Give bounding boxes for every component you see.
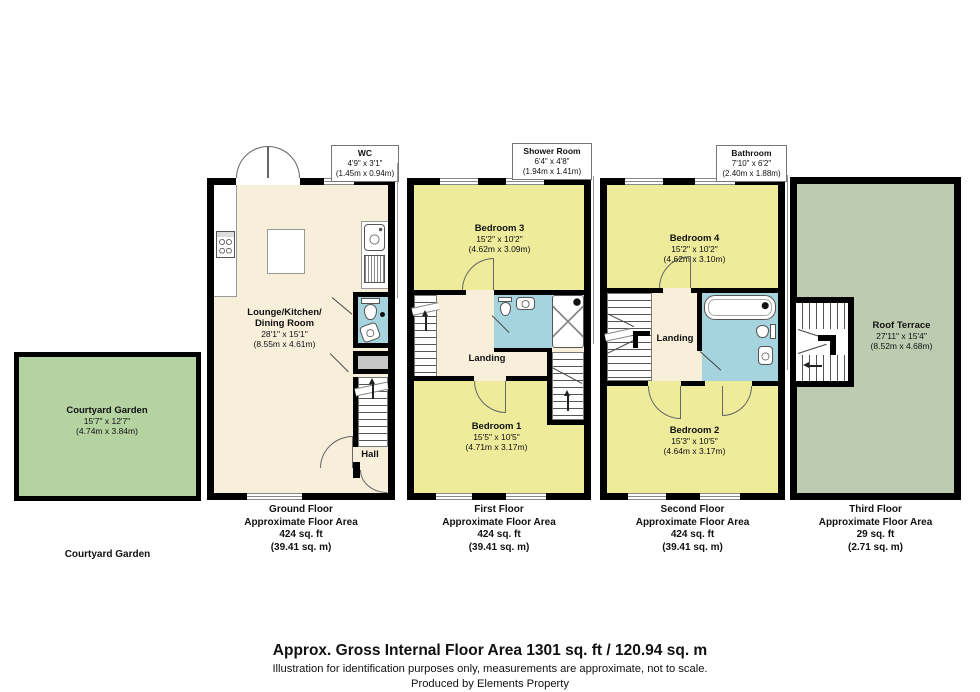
- cupboard: [353, 351, 388, 374]
- wc-dot: [380, 312, 385, 317]
- room-name: Bedroom 3: [437, 223, 562, 234]
- french-door-right-icon: [268, 146, 300, 178]
- window-bottom-2: [506, 493, 546, 500]
- bedroom2-door-arc-right: [722, 386, 752, 416]
- room-name: Lounge/Kitchen/ Dining Room: [222, 307, 347, 329]
- roof-stair-enclosure: [790, 297, 854, 387]
- room-dims-m: (4.62m x 3.09m): [437, 244, 562, 254]
- room-dims-ft: 15'3" x 10'5": [632, 436, 757, 446]
- caption-line: 424 sq. ft: [600, 529, 785, 542]
- caption-ground-floor: Ground Floor Approximate Floor Area 424 …: [207, 504, 395, 554]
- callout-leader-bathroom: [787, 175, 788, 370]
- caption-line: 29 sq. ft: [790, 529, 961, 542]
- callout-dims-m: (1.45m x 0.94m): [335, 169, 395, 179]
- room-dims-ft: 15'7" x 12'7": [37, 416, 177, 426]
- room-label-landing1: Landing: [456, 353, 518, 364]
- callout-leader-wc: [397, 163, 398, 298]
- stair-arrow: [808, 365, 822, 367]
- sink-icon: [364, 224, 385, 251]
- bedroom3-door-arc: [462, 258, 494, 290]
- stair-treads-top: [796, 303, 848, 329]
- wall-bed2-b: [681, 381, 705, 386]
- callout-leader-shower: [593, 176, 594, 344]
- callout-dims-m: (1.94m x 1.41m): [516, 167, 588, 177]
- caption-line: Approximate Floor Area: [600, 517, 785, 530]
- hob-icon: [216, 231, 235, 258]
- room-dims-ft: 15'5" x 10'5": [434, 432, 559, 442]
- window-top-1: [625, 178, 663, 185]
- first-floor-plan: Bedroom 3 15'2" x 10'2" (4.62m x 3.09m) …: [407, 178, 591, 500]
- window-bottom-2: [700, 493, 740, 500]
- footer-disclaimer: Illustration for identification purposes…: [0, 663, 980, 675]
- room-name: Courtyard Garden: [37, 405, 177, 416]
- caption-line: (39.41 sq. m): [600, 542, 785, 555]
- callout-shower-room: Shower Room 6'4" x 4'8" (1.94m x 1.41m): [512, 143, 592, 180]
- french-door-opening: [236, 178, 300, 185]
- basin-icon: [516, 297, 535, 310]
- caption-second-floor: Second Floor Approximate Floor Area 424 …: [600, 504, 785, 554]
- footer-credit: Produced by Elements Property: [0, 678, 980, 690]
- callout-name: Shower Room: [516, 146, 588, 157]
- drainer-icon: [364, 255, 385, 283]
- caption-line: 424 sq. ft: [207, 529, 395, 542]
- caption-line: 424 sq. ft: [407, 529, 591, 542]
- room-dims-m: (4.64m x 3.17m): [632, 446, 757, 456]
- callout-name: Bathroom: [720, 148, 783, 159]
- wall-bed2-a: [607, 381, 648, 386]
- bedroom2-door-arc-left: [648, 386, 681, 419]
- hall-wall-stub: [353, 462, 360, 478]
- caption-first-floor: First Floor Approximate Floor Area 424 s…: [407, 504, 591, 554]
- room-label-lounge: Lounge/Kitchen/ Dining Room 28'1" x 15'1…: [222, 307, 347, 349]
- room-name: Bedroom 4: [632, 233, 757, 244]
- stair-winder-2: [798, 344, 827, 355]
- room-dims-ft: 27'11" x 15'4": [849, 331, 954, 341]
- room-dims-m: (4.74m x 3.84m): [37, 426, 177, 436]
- room-label-bedroom3: Bedroom 3 15'2" x 10'2" (4.62m x 3.09m): [437, 223, 562, 254]
- third-floor-plan: Roof Terrace 27'11" x 15'4" (8.52m x 4.6…: [790, 177, 961, 500]
- callout-dims-ft: 4'9" x 3'1": [335, 159, 395, 169]
- stair-arrow-2: [567, 395, 569, 411]
- bedroom1-door-arc: [474, 381, 506, 413]
- callout-name: WC: [335, 148, 395, 159]
- room-dims-m: (4.62m x 3.10m): [632, 254, 757, 264]
- wall-bed1-a: [414, 376, 474, 381]
- stair-arrow: [372, 383, 374, 399]
- shower-icon: [552, 295, 584, 348]
- hall-door-arc: [320, 436, 353, 468]
- callout-dims-m: (2.40m x 1.88m): [720, 169, 783, 179]
- caption-line: First Floor: [407, 504, 591, 517]
- front-door-arc: [360, 470, 387, 493]
- caption-line: (39.41 sq. m): [407, 542, 591, 555]
- bathtub-icon: [704, 295, 776, 320]
- stair-arrow-head: [369, 378, 375, 384]
- stair-stub-b: [633, 336, 638, 348]
- room-dims-m: (8.52m x 4.68m): [849, 341, 954, 351]
- room-name: Bedroom 2: [632, 425, 757, 436]
- room-label-landing2: Landing: [645, 333, 705, 344]
- window-bottom: [247, 493, 302, 500]
- courtyard-garden-plan: Courtyard Garden 15'7" x 12'7" (4.74m x …: [14, 352, 201, 501]
- caption-line: (2.71 sq. m): [790, 542, 961, 555]
- stair-arrow-head-2: [564, 390, 570, 396]
- caption-line: Second Floor: [600, 504, 785, 517]
- room-name: Roof Terrace: [849, 320, 954, 331]
- room-label-roof-terrace: Roof Terrace 27'11" x 15'4" (8.52m x 4.6…: [849, 320, 954, 351]
- cupboard-door-line: [330, 353, 349, 372]
- stair-arrow-head: [422, 310, 428, 316]
- room-label-bedroom4: Bedroom 4 15'2" x 10'2" (4.62m x 3.10m): [632, 233, 757, 264]
- callout-bathroom: Bathroom 7'10" x 6'2" (2.40m x 1.88m): [716, 145, 787, 182]
- room-label-courtyard-garden: Courtyard Garden 15'7" x 12'7" (4.74m x …: [37, 405, 177, 436]
- room-dims-m: (8.55m x 4.61m): [222, 339, 347, 349]
- caption-line: Ground Floor: [207, 504, 395, 517]
- wall-shower-bottom: [494, 348, 552, 352]
- stair-arrow-head: [803, 362, 809, 368]
- room-label-bedroom1: Bedroom 1 15'5" x 10'5" (4.71m x 3.17m): [434, 421, 559, 452]
- stair-stub-b: [830, 341, 836, 355]
- callout-wc: WC 4'9" x 3'1" (1.45m x 0.94m): [331, 145, 399, 182]
- room-dims-m: (4.71m x 3.17m): [434, 442, 559, 452]
- caption-line: Approximate Floor Area: [407, 517, 591, 530]
- window-bottom-1: [628, 493, 666, 500]
- ground-floor-plan: Lounge/Kitchen/ Dining Room 28'1" x 15'1…: [207, 178, 395, 500]
- window-top-1: [440, 178, 478, 185]
- french-door-left-icon: [236, 146, 268, 178]
- caption-line: (39.41 sq. m): [207, 542, 395, 555]
- caption-courtyard: Courtyard Garden: [14, 549, 201, 562]
- stair-arrow: [425, 315, 427, 331]
- footer-title: Approx. Gross Internal Floor Area 1301 s…: [0, 642, 980, 660]
- callout-dims-ft: 7'10" x 6'2": [720, 159, 783, 169]
- room-dims-ft: 15'2" x 10'2": [437, 234, 562, 244]
- wall-bed2-c: [752, 381, 778, 386]
- room-name: Bedroom 1: [434, 421, 559, 432]
- window-bottom-1: [436, 493, 472, 500]
- wall-bed1-b: [506, 376, 547, 381]
- room-dims-ft: 28'1" x 15'1": [222, 329, 347, 339]
- second-floor-plan: Bedroom 4 15'2" x 10'2" (4.62m x 3.10m) …: [600, 178, 785, 500]
- toilet-icon: [770, 324, 776, 339]
- caption-line: Approximate Floor Area: [207, 517, 395, 530]
- caption-line: Approximate Floor Area: [790, 517, 961, 530]
- room-dims-ft: 15'2" x 10'2": [632, 244, 757, 254]
- stair-treads-bottom: [796, 355, 848, 381]
- caption-third-floor: Third Floor Approximate Floor Area 29 sq…: [790, 504, 961, 554]
- kitchen-island: [267, 229, 305, 274]
- room-label-hall: Hall: [354, 449, 386, 460]
- basin-icon: [758, 346, 773, 365]
- room-label-bedroom2: Bedroom 2 15'3" x 10'5" (4.64m x 3.17m): [632, 425, 757, 456]
- caption-line: Third Floor: [790, 504, 961, 517]
- callout-dims-ft: 6'4" x 4'8": [516, 157, 588, 167]
